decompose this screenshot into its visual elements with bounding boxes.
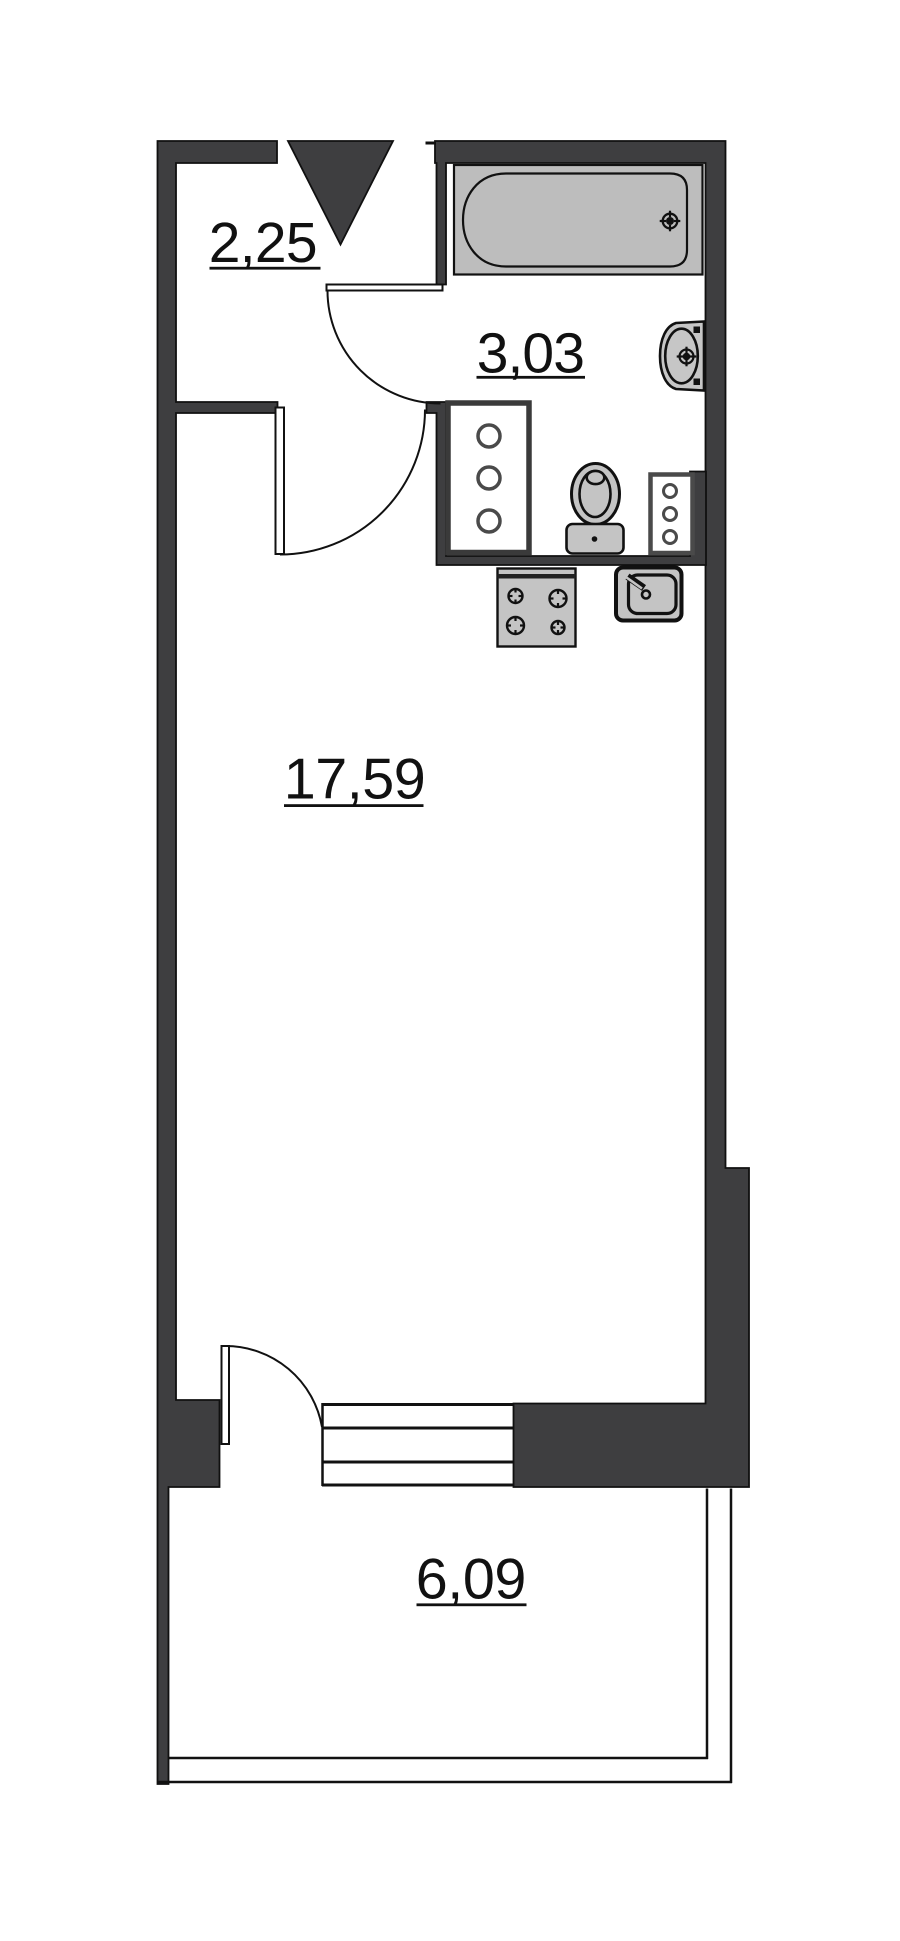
svg-text:6,09: 6,09 xyxy=(416,1548,526,1612)
svg-text:17,59: 17,59 xyxy=(284,748,425,812)
svg-text:2,25: 2,25 xyxy=(209,211,317,275)
